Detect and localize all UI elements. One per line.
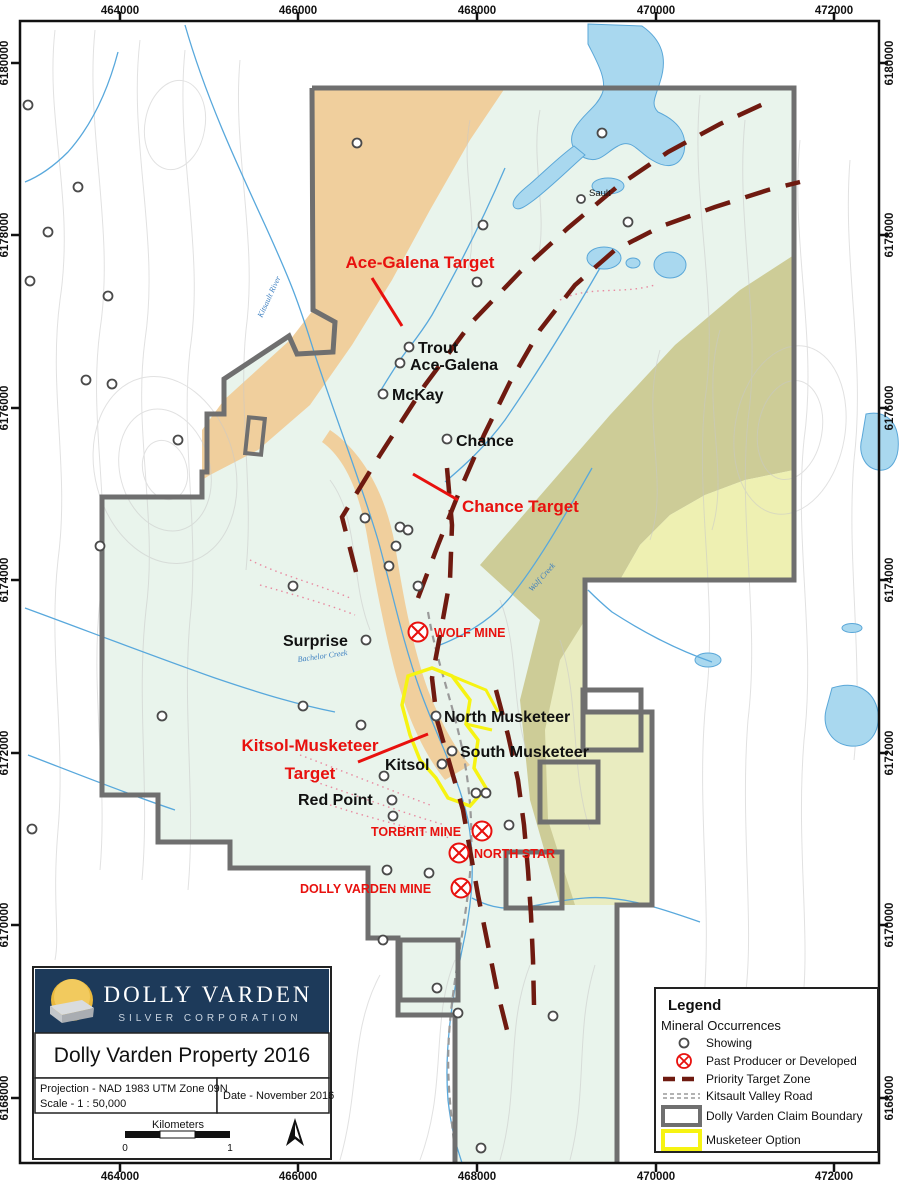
coord-left-6: 6168000 — [0, 1076, 11, 1121]
coord-left-2: 6176000 — [0, 386, 11, 431]
coord-top-0: 464000 — [101, 5, 139, 17]
scalebar-start: 0 — [122, 1143, 128, 1154]
place-label-north-musketeer: North Musketeer — [444, 709, 570, 726]
kitsol-musketeer-target-label-2: Target — [285, 764, 336, 783]
scale-bar — [125, 1131, 230, 1138]
legend-item-claim-boundary: Dolly Varden Claim Boundary — [706, 1109, 863, 1123]
coord-right-4: 6172000 — [884, 731, 896, 776]
coord-bottom-1: 466000 — [279, 1171, 317, 1183]
legend: Legend Mineral Occurrences Showing Past … — [655, 988, 878, 1152]
wolf-mine-label: WOLF MINE — [434, 626, 506, 640]
north-star-symbol — [450, 844, 469, 863]
torbrit-mine-symbol — [473, 822, 492, 841]
scale-text: Scale - 1 : 50,000 — [40, 1098, 126, 1110]
wolf-mine-symbol — [409, 623, 428, 642]
legend-showing-icon — [680, 1039, 689, 1048]
coord-left-5: 6170000 — [0, 903, 11, 948]
coord-right-1: 6178000 — [884, 213, 896, 258]
legend-claim-boundary-icon — [663, 1107, 700, 1125]
ace-galena-target-label: Ace-Galena Target — [346, 253, 495, 272]
dolly-varden-mine-label: DOLLY VARDEN MINE — [300, 882, 431, 896]
title-block: DOLLY VARDEN SILVER CORPORATION Dolly Va… — [33, 967, 334, 1159]
coord-right-6: 6168000 — [884, 1076, 896, 1121]
projection-text: Projection - NAD 1983 UTM Zone 09N — [40, 1083, 228, 1095]
coord-right-0: 6180000 — [884, 41, 896, 86]
kitsol-musketeer-target-label-1: Kitsol-Musketeer — [242, 736, 379, 755]
coord-left-4: 6172000 — [0, 731, 11, 776]
legend-subtitle: Mineral Occurrences — [661, 1018, 781, 1033]
place-label-chance: Chance — [456, 433, 514, 450]
north-star-label: NORTH STAR — [474, 847, 555, 861]
legend-title: Legend — [668, 997, 721, 1014]
legend-item-priority-target: Priority Target Zone — [706, 1072, 811, 1086]
company-name: DOLLY VARDEN — [104, 982, 313, 1007]
chance-target-label: Chance Target — [462, 497, 579, 516]
map-title: Dolly Varden Property 2016 — [54, 1044, 310, 1067]
scalebar-end: 1 — [227, 1143, 233, 1154]
coord-bottom-2: 468000 — [458, 1171, 496, 1183]
coord-right-2: 6176000 — [884, 386, 896, 431]
scalebar-unit: Kilometers — [152, 1119, 204, 1131]
place-label-trout: Trout — [418, 340, 459, 357]
legend-musketeer-icon — [663, 1131, 700, 1149]
place-label-south-musketeer: South Musketeer — [460, 744, 589, 761]
coord-right-5: 6170000 — [884, 903, 896, 948]
legend-past-producer-icon — [677, 1054, 691, 1068]
coord-right-3: 6174000 — [884, 558, 896, 603]
place-label-kitsol: Kitsol — [385, 757, 429, 774]
place-label-mckay: McKay — [392, 387, 444, 404]
coord-left-3: 6174000 — [0, 558, 11, 603]
company-subtitle: SILVER CORPORATION — [118, 1013, 301, 1024]
place-label-ace-galena: Ace-Galena — [410, 357, 498, 374]
map-page: Kitsault River Wolf Creek Bachelor Creek — [0, 0, 900, 1183]
coord-left-1: 6178000 — [0, 213, 11, 258]
coord-top-4: 472000 — [815, 5, 853, 17]
coord-bottom-3: 470000 — [637, 1171, 675, 1183]
place-label-sault: Sault — [589, 188, 611, 199]
legend-item-musketeer: Musketeer Option — [706, 1133, 801, 1147]
coord-top-2: 468000 — [458, 5, 496, 17]
dolly-varden-mine-symbol — [452, 879, 471, 898]
date-text: Date - November 2016 — [223, 1090, 334, 1102]
place-label-red-point: Red Point — [298, 792, 373, 809]
place-label-surprise: Surprise — [283, 633, 348, 650]
coord-top-3: 470000 — [637, 5, 675, 17]
coord-bottom-0: 464000 — [101, 1171, 139, 1183]
legend-item-showing: Showing — [706, 1036, 752, 1050]
coord-top-1: 466000 — [279, 5, 317, 17]
map-canvas: Kitsault River Wolf Creek Bachelor Creek — [0, 0, 900, 1183]
coord-bottom-4: 472000 — [815, 1171, 853, 1183]
legend-item-past-producer: Past Producer or Developed — [706, 1054, 857, 1068]
legend-item-road: Kitsault Valley Road — [706, 1089, 813, 1103]
torbrit-mine-label: TORBRIT MINE — [371, 825, 461, 839]
coord-left-0: 6180000 — [0, 41, 11, 86]
